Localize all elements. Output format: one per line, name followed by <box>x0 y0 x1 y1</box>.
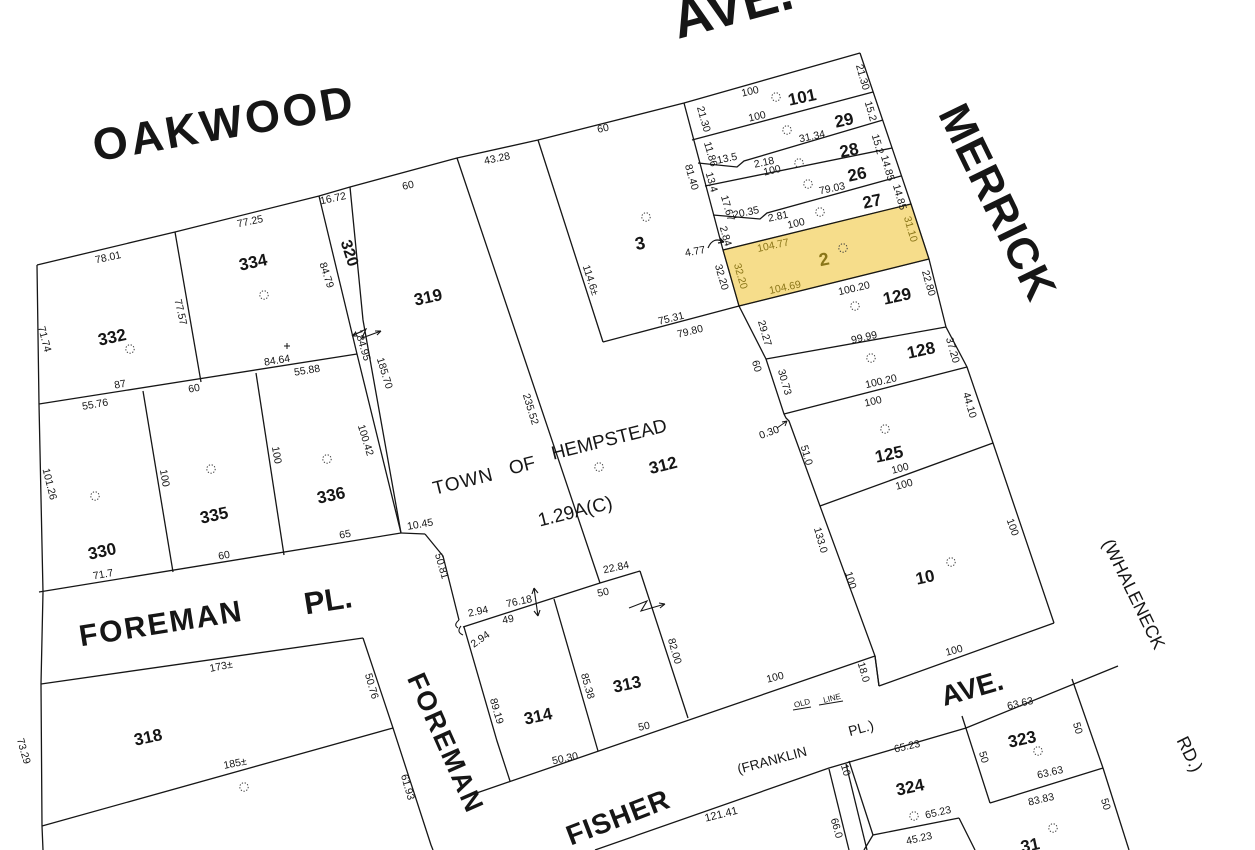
svg-text:60: 60 <box>187 382 201 396</box>
svg-text:PL.: PL. <box>301 579 354 621</box>
svg-text:10: 10 <box>914 566 936 589</box>
svg-text:29: 29 <box>833 109 855 132</box>
svg-text:65: 65 <box>338 528 352 542</box>
svg-text:87: 87 <box>113 378 127 392</box>
svg-text:27: 27 <box>861 190 883 213</box>
svg-text:60: 60 <box>217 549 231 563</box>
svg-text:28: 28 <box>838 139 860 162</box>
svg-text:26: 26 <box>846 163 868 186</box>
